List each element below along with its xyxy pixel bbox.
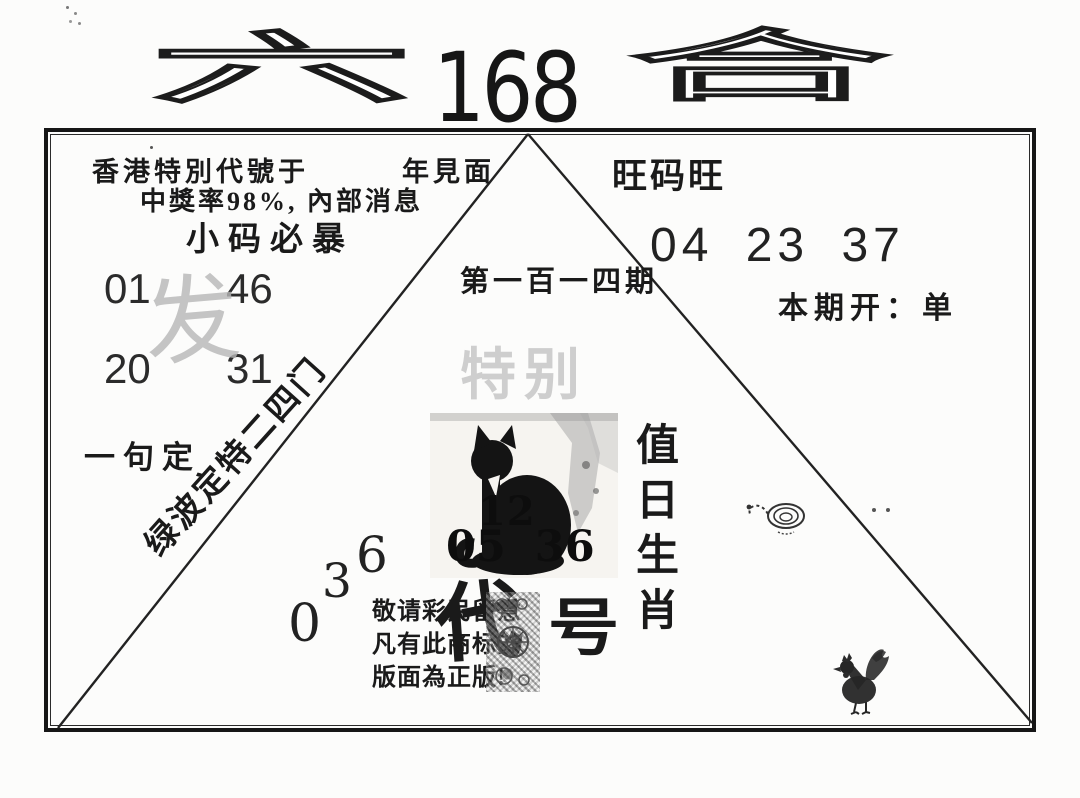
period-title: 第一百一四期: [460, 258, 658, 300]
special-watermark: 特别: [460, 330, 588, 411]
zodiac-char: 肖: [636, 589, 679, 635]
scan-speckle: [66, 6, 69, 9]
header-slogan: 小码必暴: [186, 212, 354, 260]
zodiac-duty-label: 值 日 生 肖: [636, 424, 679, 635]
logo-liu-character: 六: [150, 30, 413, 108]
cat-number-bottom: 05 36: [446, 526, 595, 569]
logo-he-character: 合: [628, 28, 891, 106]
logo-number-168: 168: [433, 50, 579, 126]
diagonal-digit: 3: [322, 558, 352, 605]
code-label-hao: 号: [548, 598, 619, 660]
phrase-label: 一句定: [84, 432, 201, 477]
seal-stamp-icon: [486, 592, 540, 692]
zodiac-char: 日: [636, 479, 679, 525]
zodiac-char: 值: [636, 424, 679, 470]
right-title: 旺码旺: [612, 148, 726, 199]
result-line: 本期开：单: [778, 283, 958, 327]
diagonal-digit: 0: [288, 598, 321, 650]
rooster-icon: [826, 638, 898, 716]
snake-icon: [734, 488, 818, 544]
diagonal-digit: 6: [356, 530, 388, 580]
zodiac-char: 生: [636, 534, 679, 580]
fa-watermark: 发: [140, 270, 244, 374]
right-numbers: 04 23 37: [650, 218, 905, 273]
left-number: 20: [104, 348, 151, 390]
